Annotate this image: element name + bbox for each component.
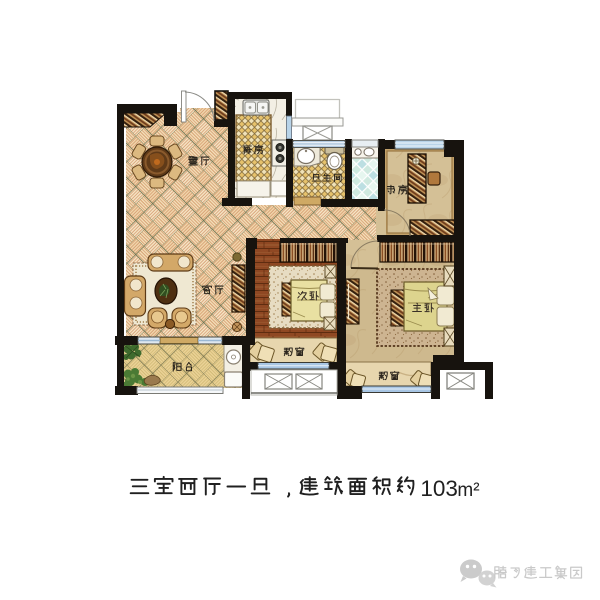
svg-text:103: 103 xyxy=(420,476,458,501)
svg-text:m²: m² xyxy=(457,480,479,501)
